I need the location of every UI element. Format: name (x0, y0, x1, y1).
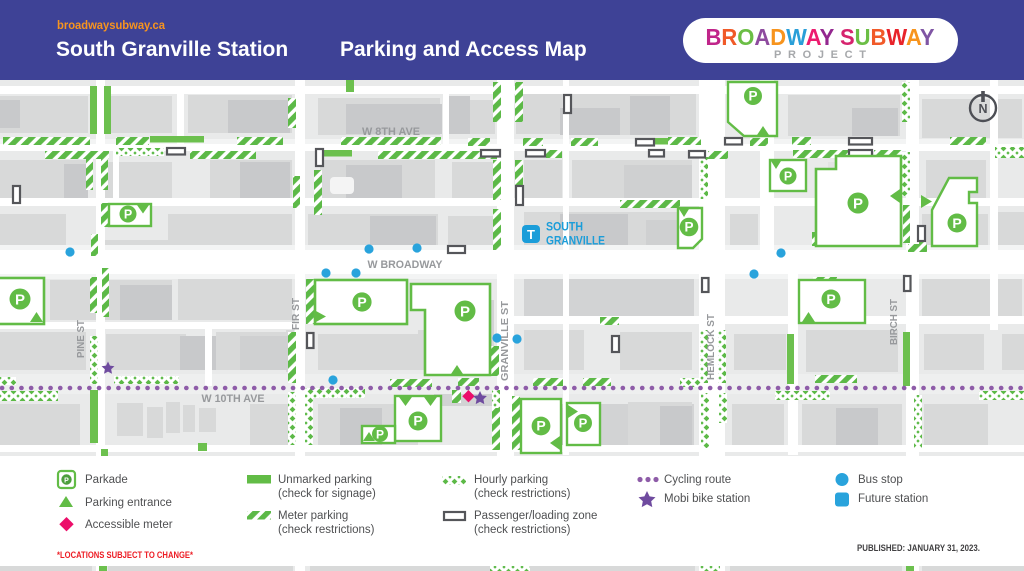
svg-text:(check restrictions): (check restrictions) (474, 524, 571, 536)
svg-text:W 10TH AVE: W 10TH AVE (202, 393, 265, 405)
svg-text:Mobi bike station: Mobi bike station (664, 493, 750, 505)
svg-text:(check restrictions): (check restrictions) (278, 524, 375, 536)
svg-text:Parking and Access Map: Parking and Access Map (340, 38, 587, 61)
svg-text:GRANVILLE: GRANVILLE (546, 234, 605, 248)
svg-text:BIRCH ST: BIRCH ST (888, 298, 900, 345)
svg-text:Passenger/loading zone: Passenger/loading zone (474, 510, 597, 522)
svg-text:P: P (536, 418, 545, 434)
svg-text:South Granville Station: South Granville Station (56, 38, 288, 61)
svg-text:SOUTH: SOUTH (546, 220, 583, 234)
svg-text:P: P (826, 291, 835, 307)
svg-text:P: P (460, 304, 470, 321)
svg-text:P: P (684, 220, 693, 235)
svg-text:W BROADWAY: W BROADWAY (368, 259, 444, 271)
svg-text:P: P (748, 89, 757, 104)
svg-text:N: N (978, 102, 987, 116)
svg-text:Meter parking: Meter parking (278, 510, 348, 522)
svg-text:PROJECT: PROJECT (774, 49, 866, 61)
svg-text:Parking entrance: Parking entrance (85, 497, 172, 509)
svg-text:PUBLISHED: JANUARY 31, 2023.: PUBLISHED: JANUARY 31, 2023. (857, 543, 980, 553)
svg-text:Future station: Future station (858, 493, 928, 505)
svg-text:BROADWAY SUBWAY: BROADWAY SUBWAY (706, 24, 935, 50)
svg-text:(check for signage): (check for signage) (278, 488, 376, 500)
svg-text:Cycling route: Cycling route (664, 474, 731, 486)
svg-text:Accessible meter: Accessible meter (85, 519, 173, 531)
svg-text:P: P (952, 215, 961, 231)
svg-text:P: P (124, 208, 132, 222)
svg-text:Bus stop: Bus stop (858, 474, 903, 486)
svg-text:*LOCATIONS SUBJECT TO CHANGE*: *LOCATIONS SUBJECT TO CHANGE* (57, 550, 193, 560)
svg-text:P: P (579, 416, 588, 431)
svg-text:Hourly parking: Hourly parking (474, 474, 548, 486)
svg-text:Parkade: Parkade (85, 474, 128, 486)
svg-text:(check restrictions): (check restrictions) (474, 488, 571, 500)
svg-text:P: P (357, 294, 366, 310)
svg-text:FIR ST: FIR ST (290, 297, 302, 330)
svg-text:GRANVILLE ST: GRANVILLE ST (499, 300, 511, 381)
svg-text:P: P (413, 413, 422, 429)
svg-text:P: P (64, 478, 69, 485)
svg-text:broadwaysubway.ca: broadwaysubway.ca (57, 18, 165, 32)
svg-text:W 8TH AVE: W 8TH AVE (362, 126, 420, 138)
svg-text:T: T (527, 227, 535, 242)
svg-text:P: P (784, 170, 792, 184)
svg-text:HEMLOCK ST: HEMLOCK ST (705, 313, 717, 380)
svg-text:P: P (376, 428, 384, 442)
svg-text:PINE ST: PINE ST (75, 319, 87, 358)
svg-text:P: P (853, 196, 863, 213)
svg-text:P: P (15, 292, 25, 309)
svg-text:Unmarked parking: Unmarked parking (278, 474, 372, 486)
